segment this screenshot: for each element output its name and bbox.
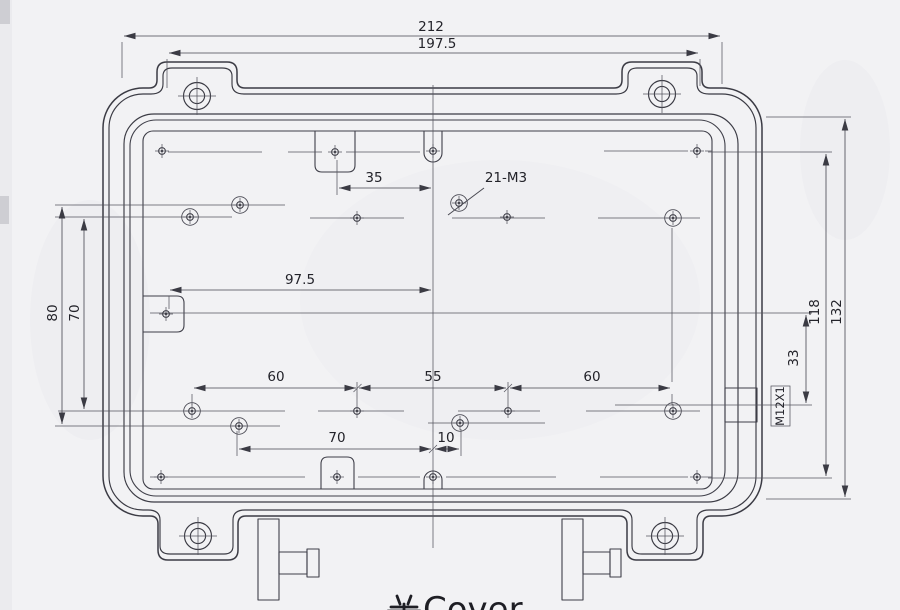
dim-notch-to-center: 35 [365,170,382,186]
lid-screw-bottom-left [179,517,217,555]
lid-screw-top-left [178,77,216,115]
dim-right-118: 118 [807,299,823,325]
dim-pitch-70: 70 [328,430,345,446]
drawing-title: Cover [388,590,523,610]
bottom-connector-right [562,519,621,600]
title-en: Cover [423,590,523,610]
dim-left-70: 70 [67,304,83,321]
dim-gland-33: 33 [786,349,802,366]
dim-overall-width: 212 [418,19,444,35]
dim-pitch-55: 55 [424,369,441,385]
dim-offset-10: 10 [437,430,454,446]
bottom-connector-left [258,519,319,600]
lid-screw-bottom-right [646,517,684,555]
dim-left-80: 80 [45,304,61,321]
cover-drawing: 212 197.5 35 21-M3 97.5 60 55 60 70 10 8… [0,0,900,610]
dim-boss-to-center: 97.5 [285,272,315,288]
title-cn-glyph [388,596,420,610]
label-holes-note: 21-M3 [485,170,527,186]
drawing-sheet: 212 197.5 35 21-M3 97.5 60 55 60 70 10 8… [0,0,900,610]
lid-screw-top-right [643,75,681,113]
label-gland-thread: M12X1 [773,386,787,426]
dim-pitch-60-left: 60 [267,369,284,385]
dim-pitch-60-right: 60 [583,369,600,385]
dim-flange-width: 197.5 [418,36,457,52]
dim-right-132: 132 [829,299,845,325]
